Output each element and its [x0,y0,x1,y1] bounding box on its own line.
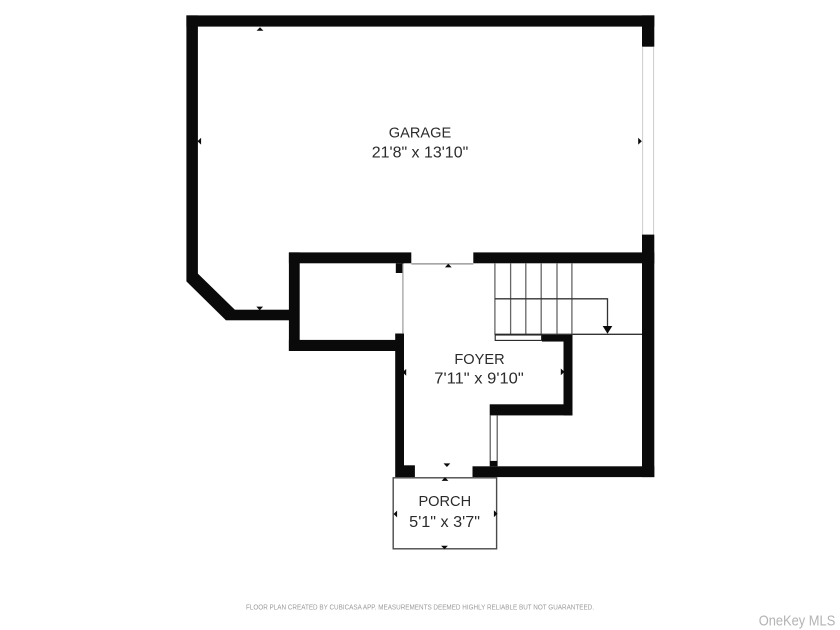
svg-text:7'11" x 9'10": 7'11" x 9'10" [434,371,524,388]
svg-text:FOYER: FOYER [454,352,504,368]
svg-text:OneKey MLS: OneKey MLS [759,613,836,630]
svg-text:PORCH: PORCH [418,494,471,510]
svg-text:FLOOR PLAN CREATED BY CUBICASA: FLOOR PLAN CREATED BY CUBICASA APP. MEAS… [246,603,594,612]
svg-text:5'1" x 3'7": 5'1" x 3'7" [409,514,480,531]
svg-text:GARAGE: GARAGE [389,126,452,142]
svg-text:21'8" x 13'10": 21'8" x 13'10" [372,145,469,162]
